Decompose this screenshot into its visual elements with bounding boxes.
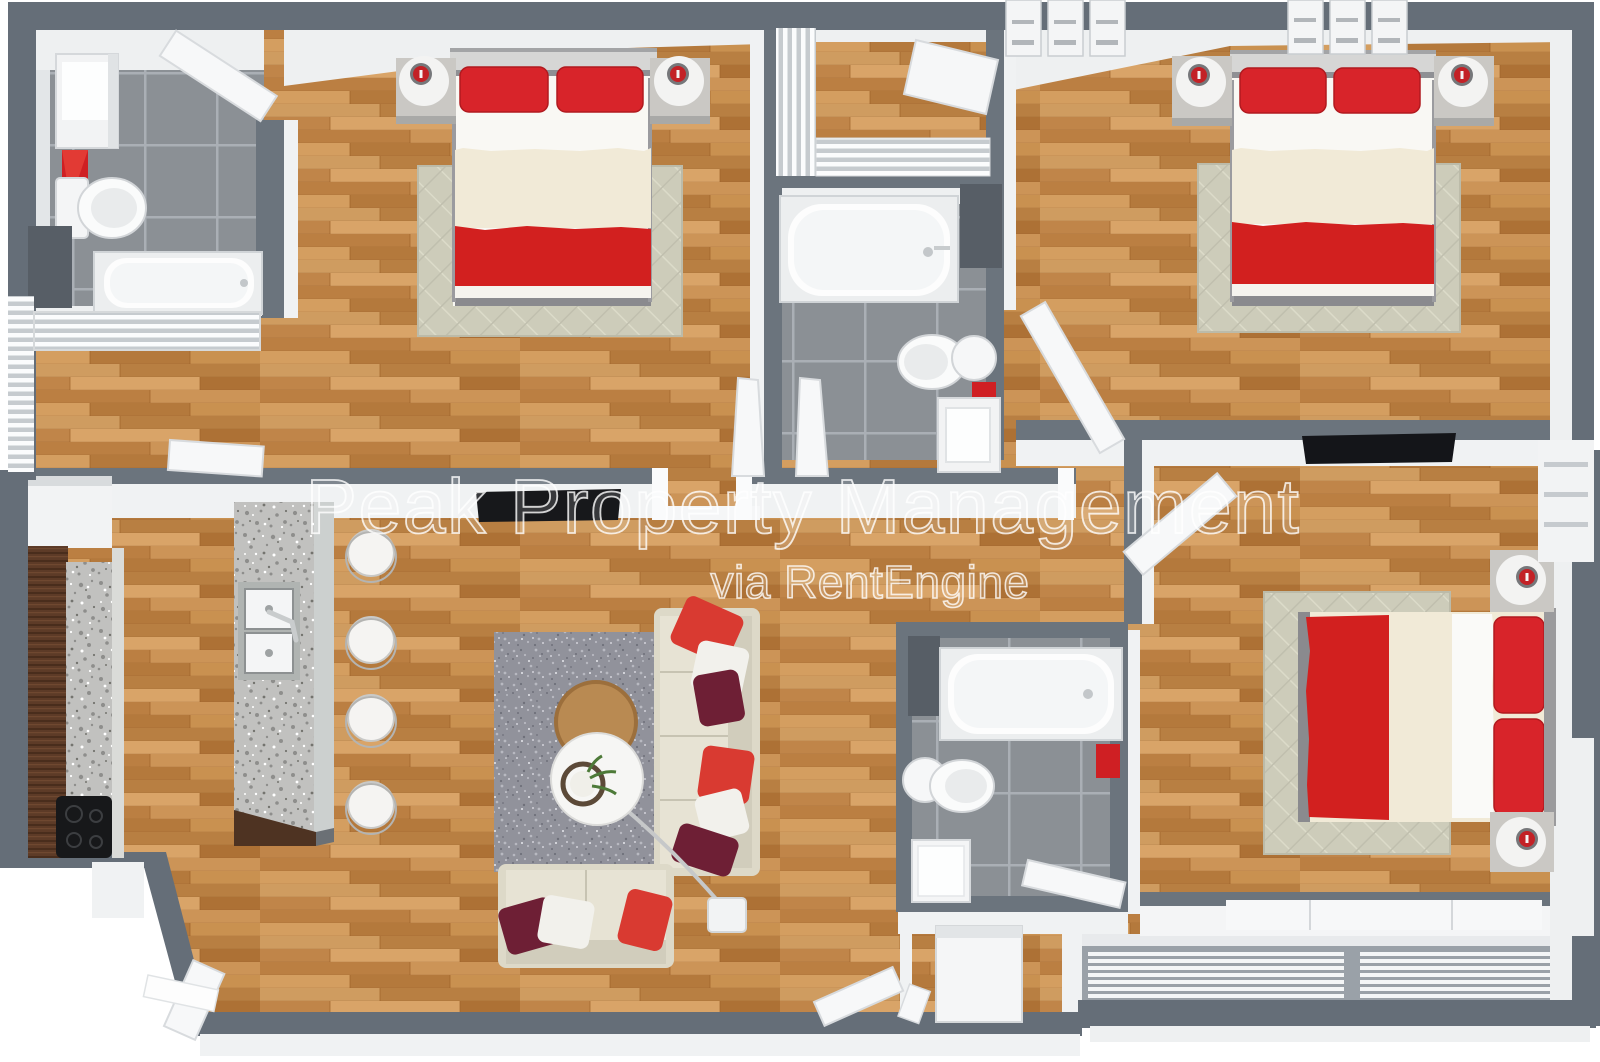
svg-text:Peak Property Management: Peak Property Management xyxy=(306,464,1301,550)
svg-text:via RentEngine: via RentEngine xyxy=(711,556,1030,608)
